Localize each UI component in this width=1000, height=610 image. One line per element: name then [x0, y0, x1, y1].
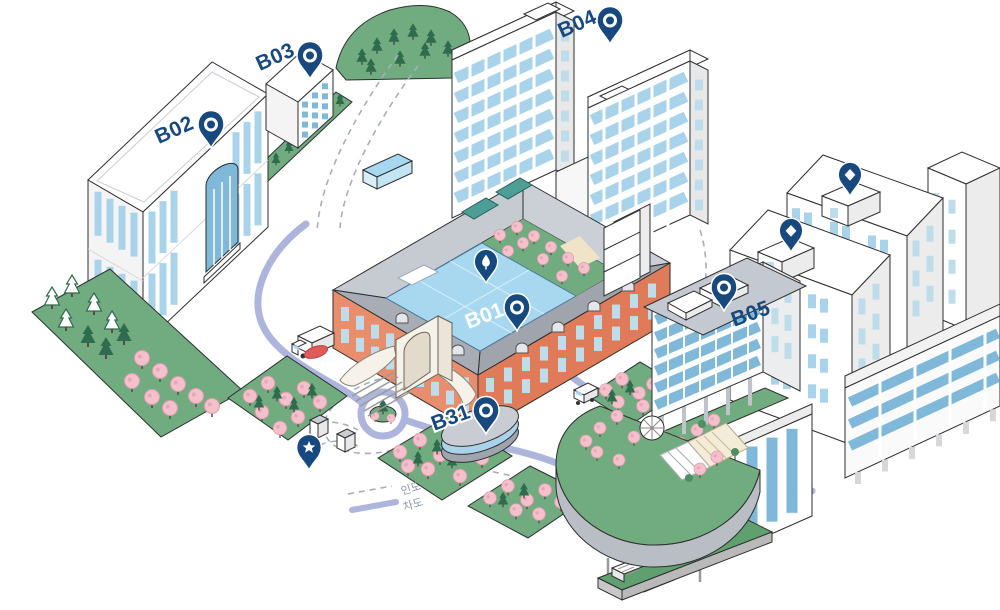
campus-map: B02 B03 B04 B01 B05 B31 인도 차도	[0, 0, 1000, 610]
hill-north	[336, 5, 470, 80]
legend-dashed-line	[348, 486, 392, 494]
map-pin-b04[interactable]	[597, 7, 623, 45]
van	[574, 383, 598, 405]
building-curved-hall[interactable]	[556, 406, 772, 600]
legend: 인도 차도	[348, 479, 425, 513]
legend-label-roadway: 차도	[401, 495, 424, 513]
lawn-west	[32, 269, 243, 437]
campus-map-illustration: B02 B03 B04 B01 B05 B31 인도 차도	[0, 0, 1000, 610]
kiosk-2	[337, 429, 355, 452]
legend-label-sidewalk: 인도	[399, 479, 422, 497]
map-pin-star[interactable]	[297, 434, 322, 470]
legend-solid-line	[352, 502, 396, 510]
glass-kiosk	[363, 154, 412, 189]
park-1	[228, 356, 347, 440]
